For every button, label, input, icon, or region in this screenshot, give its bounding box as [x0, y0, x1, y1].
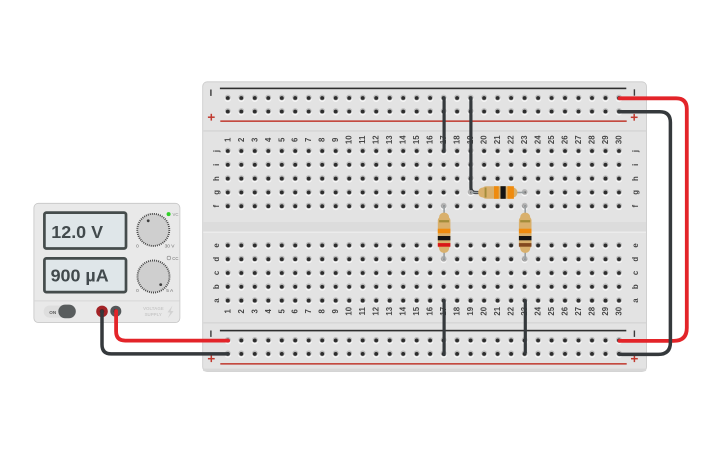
- svg-text:3: 3: [250, 137, 259, 142]
- svg-text:12: 12: [372, 306, 381, 315]
- svg-text:8: 8: [318, 137, 327, 142]
- svg-text:2: 2: [237, 137, 246, 142]
- svg-text:29: 29: [601, 306, 610, 315]
- svg-text:8: 8: [318, 308, 327, 313]
- svg-text:e: e: [212, 243, 221, 248]
- svg-text:5: 5: [277, 308, 286, 313]
- svg-text:14: 14: [399, 306, 408, 315]
- svg-text:h: h: [212, 176, 221, 181]
- svg-text:26: 26: [561, 306, 570, 315]
- svg-text:11: 11: [358, 135, 367, 144]
- svg-text:20: 20: [480, 306, 489, 315]
- svg-text:15: 15: [412, 135, 421, 144]
- svg-text:4: 4: [264, 137, 273, 142]
- svg-text:24: 24: [534, 135, 543, 144]
- svg-text:16: 16: [426, 306, 435, 315]
- svg-text:18: 18: [453, 306, 462, 315]
- svg-text:f: f: [212, 205, 221, 208]
- svg-text:25: 25: [547, 306, 556, 315]
- svg-text:j: j: [212, 150, 221, 153]
- svg-text:0: 0: [136, 244, 139, 250]
- svg-text:27: 27: [574, 135, 583, 144]
- svg-text:ON: ON: [49, 310, 57, 315]
- svg-text:28: 28: [588, 135, 597, 144]
- svg-text:22: 22: [507, 306, 516, 315]
- svg-text:23: 23: [520, 135, 529, 144]
- svg-text:a: a: [631, 298, 640, 303]
- svg-text:7: 7: [304, 138, 313, 142]
- svg-text:c: c: [212, 270, 221, 275]
- svg-text:15: 15: [412, 306, 421, 315]
- svg-text:3: 3: [250, 308, 259, 313]
- svg-text:1: 1: [223, 308, 232, 313]
- svg-text:b: b: [631, 284, 640, 289]
- svg-text:0: 0: [136, 288, 139, 294]
- svg-text:14: 14: [399, 135, 408, 144]
- svg-text:VOLTAGE: VOLTAGE: [143, 306, 164, 311]
- svg-text:30: 30: [615, 306, 624, 315]
- svg-text:6: 6: [291, 137, 300, 142]
- svg-text:d: d: [212, 257, 221, 262]
- svg-text:5 A: 5 A: [166, 288, 174, 294]
- svg-text:21: 21: [493, 135, 502, 144]
- svg-text:13: 13: [385, 306, 394, 315]
- svg-text:900 µA: 900 µA: [51, 266, 109, 286]
- svg-text:12: 12: [372, 135, 381, 144]
- svg-text:d: d: [631, 257, 640, 262]
- svg-text:2: 2: [237, 308, 246, 313]
- svg-text:10: 10: [345, 135, 354, 144]
- svg-text:VC: VC: [173, 212, 179, 217]
- svg-text:6: 6: [291, 308, 300, 313]
- svg-text:18: 18: [453, 135, 462, 144]
- svg-text:e: e: [631, 243, 640, 248]
- svg-text:24: 24: [534, 306, 543, 315]
- svg-text:CC: CC: [172, 256, 178, 261]
- svg-text:i: i: [212, 164, 221, 166]
- svg-text:12.0 V: 12.0 V: [51, 222, 103, 242]
- svg-text:29: 29: [601, 135, 610, 144]
- svg-text:28: 28: [588, 306, 597, 315]
- svg-text:20: 20: [480, 135, 489, 144]
- svg-text:SUPPLY: SUPPLY: [145, 312, 162, 317]
- svg-text:13: 13: [385, 135, 394, 144]
- svg-text:30 V: 30 V: [165, 244, 176, 250]
- svg-text:21: 21: [493, 306, 502, 315]
- svg-text:f: f: [631, 205, 640, 208]
- svg-text:4: 4: [264, 308, 273, 313]
- svg-text:26: 26: [561, 135, 570, 144]
- svg-text:5: 5: [277, 137, 286, 142]
- svg-text:22: 22: [507, 135, 516, 144]
- svg-text:g: g: [631, 190, 640, 195]
- svg-text:9: 9: [331, 137, 340, 142]
- svg-text:16: 16: [426, 135, 435, 144]
- svg-text:7: 7: [304, 309, 313, 313]
- svg-text:b: b: [212, 284, 221, 289]
- svg-text:g: g: [212, 190, 221, 195]
- svg-text:9: 9: [331, 308, 340, 313]
- svg-text:j: j: [631, 150, 640, 153]
- svg-text:27: 27: [574, 307, 583, 316]
- svg-text:a: a: [212, 298, 221, 303]
- svg-text:11: 11: [358, 307, 367, 316]
- svg-text:25: 25: [547, 135, 556, 144]
- svg-text:h: h: [631, 176, 640, 181]
- svg-text:c: c: [631, 270, 640, 275]
- svg-text:30: 30: [615, 135, 624, 144]
- svg-text:10: 10: [345, 306, 354, 315]
- svg-text:1: 1: [223, 137, 232, 142]
- svg-text:19: 19: [466, 306, 475, 315]
- svg-text:i: i: [631, 164, 640, 166]
